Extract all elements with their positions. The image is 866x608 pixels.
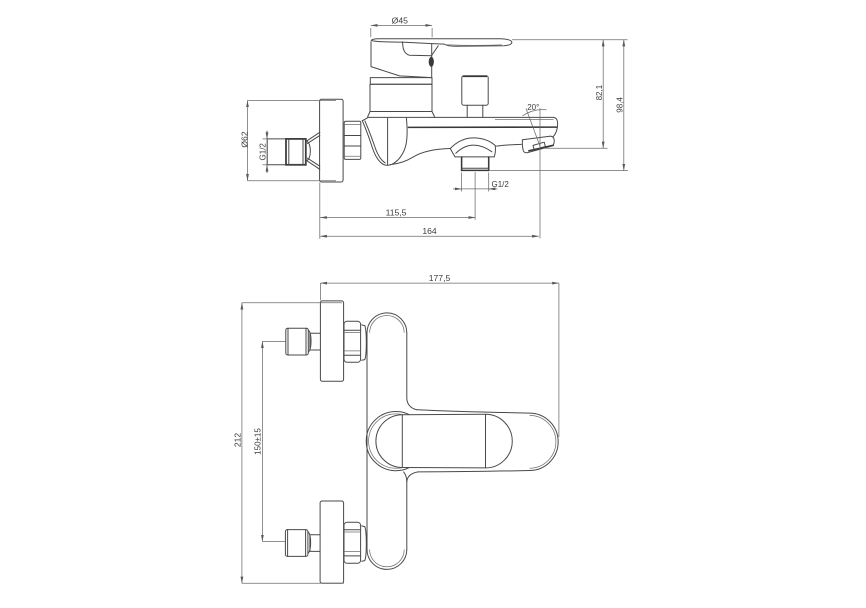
- svg-text:20°: 20°: [527, 103, 539, 112]
- svg-text:G1/2: G1/2: [259, 143, 268, 161]
- svg-text:98,4: 98,4: [616, 97, 625, 113]
- svg-text:Ø62: Ø62: [240, 131, 250, 147]
- svg-text:212: 212: [233, 433, 243, 448]
- svg-text:Ø45: Ø45: [392, 16, 408, 26]
- svg-text:177,5: 177,5: [429, 273, 451, 283]
- svg-text:82,1: 82,1: [595, 84, 604, 100]
- svg-text:G1/2: G1/2: [492, 180, 510, 189]
- svg-text:115,5: 115,5: [386, 207, 407, 217]
- svg-text:150±15: 150±15: [254, 428, 263, 455]
- svg-text:164: 164: [422, 226, 437, 236]
